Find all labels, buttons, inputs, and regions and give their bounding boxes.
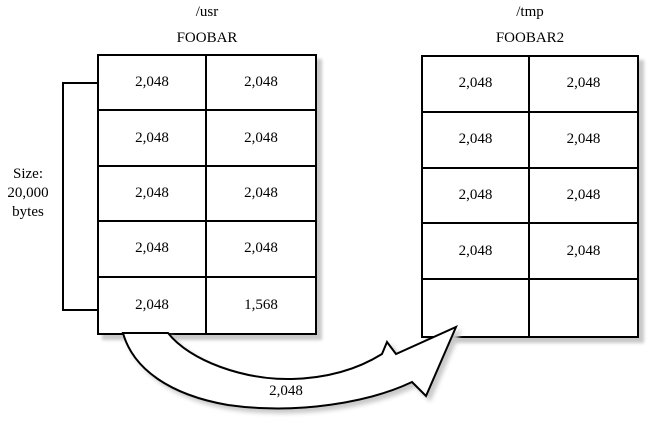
- block-cell: 2,048: [530, 169, 637, 225]
- block-cell: 2,048: [530, 113, 637, 169]
- block-cell: 2,048: [530, 57, 637, 113]
- block-cell: 2,048: [207, 222, 315, 277]
- block-cell: 2,048: [207, 56, 315, 111]
- block-cell: [530, 280, 637, 336]
- arrow-block-size-label: 2,048: [256, 383, 316, 400]
- block-cell: 2,048: [423, 169, 530, 225]
- block-cell: 2,048: [99, 56, 207, 111]
- block-cell: 2,048: [207, 167, 315, 222]
- foobar-block-table: 2,048 2,048 2,048 2,048 2,048 2,048 2,04…: [97, 54, 317, 335]
- foobar2-block-table: 2,048 2,048 2,048 2,048 2,048 2,048 2,04…: [421, 55, 639, 338]
- size-bracket: [62, 82, 97, 311]
- block-cell: 2,048: [99, 111, 207, 166]
- block-cell: 2,048: [423, 57, 530, 113]
- block-cell: 2,048: [99, 222, 207, 277]
- size-annotation-line: Size:: [0, 165, 56, 184]
- block-cell: [423, 280, 530, 336]
- right-mount-label: /tmp: [421, 3, 639, 21]
- diagram-canvas: /usr FOOBAR /tmp FOOBAR2 Size: 20,000 by…: [0, 0, 648, 431]
- size-annotation-line: bytes: [0, 203, 56, 222]
- block-cell: 2,048: [530, 224, 637, 280]
- size-annotation: Size: 20,000 bytes: [0, 165, 56, 222]
- block-cell: 2,048: [423, 113, 530, 169]
- block-cell: 2,048: [423, 224, 530, 280]
- left-mount-label: /usr: [97, 3, 317, 21]
- size-annotation-line: 20,000: [0, 184, 56, 203]
- block-cell: 2,048: [207, 111, 315, 166]
- right-file-name: FOOBAR2: [421, 29, 639, 47]
- left-file-name: FOOBAR: [97, 29, 317, 47]
- block-cell: 1,568: [207, 278, 315, 333]
- block-cell: 2,048: [99, 278, 207, 333]
- block-cell: 2,048: [99, 167, 207, 222]
